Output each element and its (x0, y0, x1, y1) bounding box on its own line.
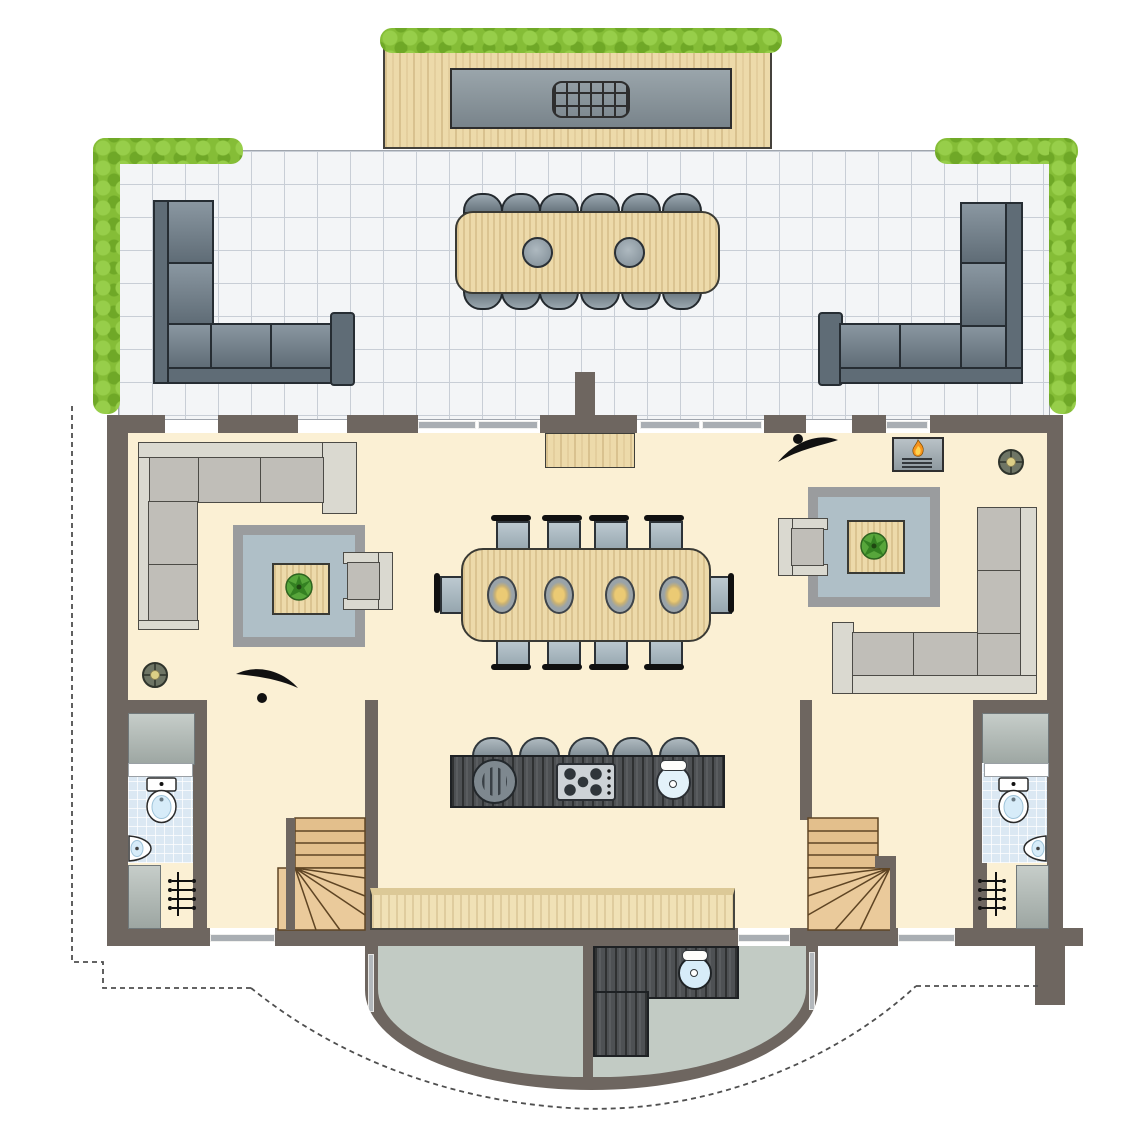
floor-plan (0, 0, 1145, 1145)
site-boundary-dashed (0, 0, 1145, 1145)
